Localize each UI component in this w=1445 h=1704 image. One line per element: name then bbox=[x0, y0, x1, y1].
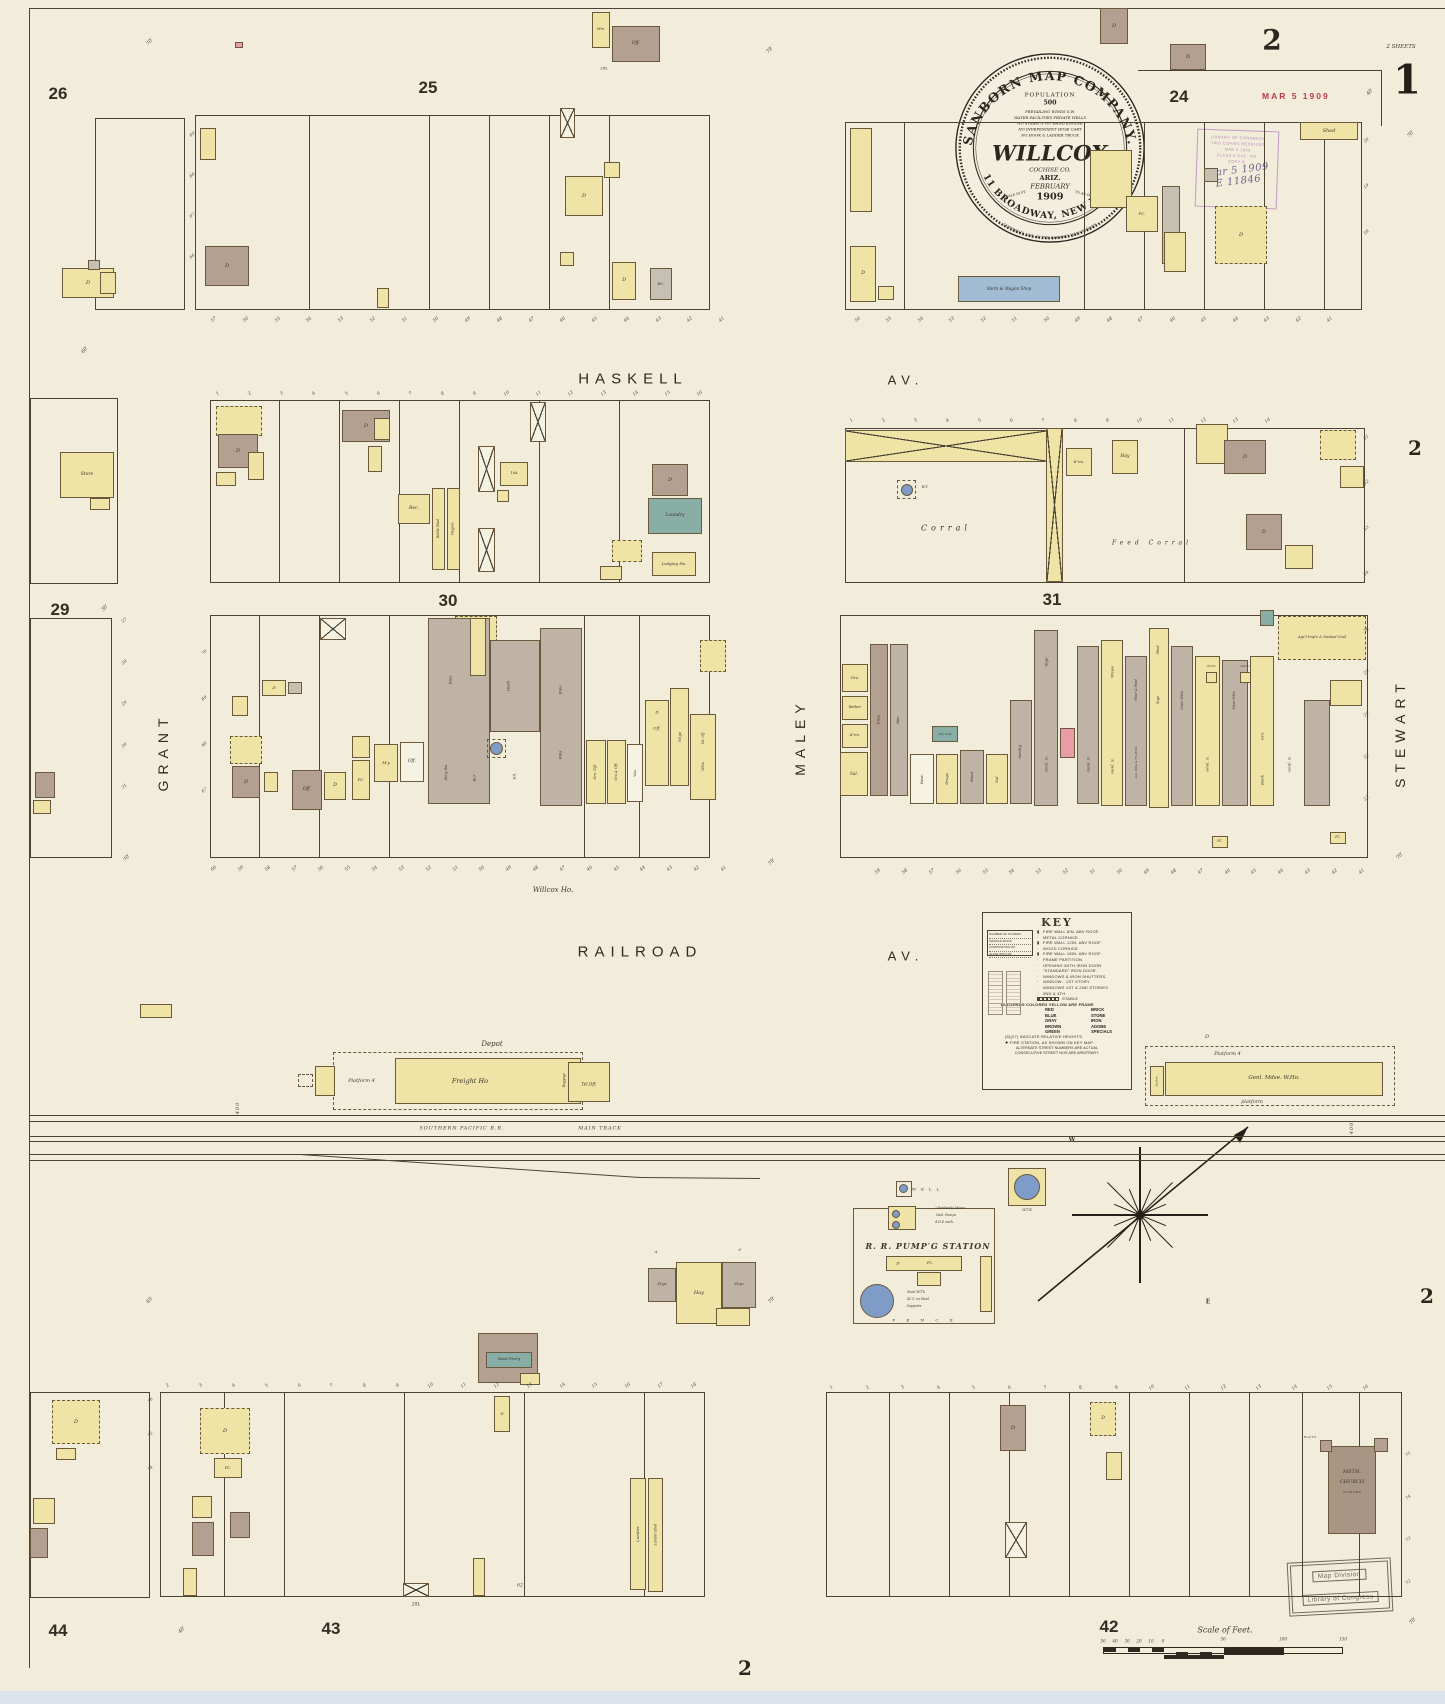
church-label: METH. bbox=[1343, 1469, 1361, 1475]
building bbox=[320, 618, 346, 640]
building-label: Drugs bbox=[945, 773, 949, 785]
lot-number: 9 bbox=[395, 1383, 400, 1389]
map-line bbox=[389, 615, 390, 857]
lot-number: 57 bbox=[928, 868, 936, 876]
map-line bbox=[1129, 1392, 1130, 1596]
map-label: Din′g Rm. bbox=[444, 764, 448, 781]
building-label: D bbox=[364, 424, 368, 429]
building-label: Lumber Shed bbox=[654, 1524, 657, 1546]
lot-number: 7 bbox=[1043, 1385, 1048, 1391]
map-line bbox=[904, 122, 905, 310]
map-label: Steel W.T′k bbox=[907, 1290, 925, 1294]
building bbox=[88, 260, 100, 270]
building: D bbox=[850, 246, 876, 302]
lot-number: 6 bbox=[1009, 418, 1014, 424]
lot-number: 5 bbox=[344, 391, 349, 397]
building-label: PC. bbox=[1217, 840, 1222, 843]
lot-number: 6 bbox=[297, 1383, 302, 1389]
building-label: St'ge bbox=[678, 732, 682, 742]
map-line bbox=[1184, 428, 1185, 583]
building bbox=[478, 528, 495, 572]
lot-number: 49 bbox=[464, 316, 472, 324]
building bbox=[264, 772, 278, 792]
building bbox=[1285, 545, 1313, 569]
lot-number: 56 bbox=[955, 868, 963, 876]
map-line bbox=[30, 1136, 1445, 1137]
building: Store bbox=[60, 452, 114, 498]
lot-number: 67 bbox=[200, 786, 207, 793]
lot-number: 40 bbox=[1112, 1639, 1117, 1644]
lot-number: 51 bbox=[401, 316, 409, 324]
map-label: Genl. S. bbox=[1086, 756, 1091, 772]
building bbox=[35, 772, 55, 798]
lot-number: 56 bbox=[854, 316, 862, 324]
freight-house-label: Freight Ho bbox=[452, 1077, 488, 1085]
building: D bbox=[1090, 1402, 1116, 1436]
building-label: Stern & Wagon Shop bbox=[987, 287, 1032, 291]
building: Sal. bbox=[840, 752, 868, 796]
lot-number: 5 bbox=[977, 418, 982, 424]
building: Off. bbox=[292, 770, 322, 810]
building bbox=[298, 1074, 313, 1087]
building bbox=[490, 742, 503, 755]
building: D bbox=[1224, 440, 1266, 474]
lot-number: 44 bbox=[640, 865, 648, 873]
building: PC. bbox=[1212, 836, 1228, 848]
map-label: WELL bbox=[912, 1187, 944, 1192]
lot-number: 57 bbox=[291, 865, 299, 873]
map-label: D bbox=[896, 1261, 899, 1266]
building: Bottle Shed bbox=[432, 488, 445, 570]
building: D bbox=[494, 1396, 510, 1432]
map-line bbox=[279, 400, 280, 582]
building bbox=[490, 640, 540, 732]
building: Rest. bbox=[910, 754, 934, 804]
lot-number: 48 bbox=[1106, 316, 1114, 324]
street-label-grant: GRANT bbox=[155, 713, 171, 792]
map-label: Rms bbox=[558, 751, 563, 760]
building: D bbox=[205, 246, 249, 286]
building bbox=[200, 128, 216, 160]
building-label: Sal. bbox=[850, 772, 858, 776]
building: St'ge bbox=[722, 1262, 756, 1308]
lot-number: 46 bbox=[559, 316, 567, 324]
building bbox=[315, 1066, 335, 1096]
scale-bar-segment bbox=[1164, 1655, 1224, 1659]
map-line bbox=[30, 1154, 1445, 1155]
building-label: Drs. Off. bbox=[594, 764, 598, 779]
key-mini-row: SLATE WITH RF bbox=[989, 952, 1031, 959]
compass-west: W bbox=[1069, 1137, 1076, 1144]
building: K'rm. bbox=[842, 724, 868, 748]
map-label: Flour & Feed bbox=[1134, 679, 1138, 700]
adjacent-sheet-2-right-upper: 2 bbox=[1408, 436, 1422, 460]
building-label: Off. bbox=[303, 788, 311, 793]
building bbox=[216, 472, 236, 486]
street-label-railroad-av: AV. bbox=[888, 949, 925, 964]
lot-number: 4 bbox=[945, 418, 950, 424]
building bbox=[1060, 728, 1075, 758]
map-label: 4 H.P. each bbox=[935, 1220, 953, 1224]
building: Wagons bbox=[447, 488, 460, 570]
building-label: Agr'l Imp's & Sacked Coal bbox=[1298, 636, 1346, 640]
map-line bbox=[584, 615, 585, 857]
building-label: D bbox=[622, 279, 626, 284]
building-label: Res. bbox=[897, 716, 901, 724]
map-label: 70′ bbox=[122, 853, 131, 863]
building: Vac. bbox=[627, 744, 643, 802]
map-line bbox=[429, 115, 430, 310]
map-label: Genl. S. bbox=[1287, 756, 1292, 772]
lot-number: 45 bbox=[591, 316, 599, 324]
map-line bbox=[549, 115, 550, 310]
lot-number: 50 bbox=[1220, 1637, 1225, 1642]
building: Lumber Shed bbox=[648, 1478, 663, 1592]
lot-number: 46 bbox=[1169, 316, 1177, 324]
building bbox=[33, 1498, 55, 1524]
lot-number: 8 bbox=[1078, 1385, 1083, 1391]
lot-number: 16 bbox=[1362, 1384, 1370, 1392]
lot-number: 51 bbox=[1089, 868, 1097, 876]
building bbox=[690, 714, 716, 800]
building-label: Wagons bbox=[452, 523, 455, 536]
building bbox=[1206, 672, 1217, 683]
lot-number: 12 bbox=[1220, 1384, 1228, 1392]
map-label: Roof T′k bbox=[1304, 1435, 1316, 1439]
block-number-42: 42 bbox=[1100, 1617, 1119, 1637]
building bbox=[1005, 1522, 1027, 1558]
building bbox=[473, 1558, 485, 1596]
lot-number: 42 bbox=[686, 316, 694, 324]
building-label: K'rm. bbox=[1074, 460, 1085, 464]
building-label: Bottle Shed bbox=[437, 520, 440, 539]
building bbox=[612, 540, 642, 562]
map-label: Off. bbox=[653, 726, 660, 731]
building: St'ge bbox=[648, 1268, 676, 1302]
lot-number: 5 bbox=[264, 1383, 269, 1389]
map-label: Bank bbox=[1260, 775, 1265, 785]
lot-number: 7 bbox=[330, 1383, 335, 1389]
lot-number: 57 bbox=[210, 316, 218, 324]
key-title: KEY bbox=[987, 916, 1127, 929]
lot-number: 8 bbox=[440, 391, 445, 397]
building bbox=[700, 640, 726, 672]
lot-number: 47 bbox=[559, 865, 567, 873]
building bbox=[1304, 700, 1330, 806]
building: D bbox=[1170, 44, 1206, 70]
building bbox=[1046, 428, 1063, 582]
building: D bbox=[1246, 514, 1282, 550]
seal-fact: WATER FACILITIES PRIVATE WELLS bbox=[1014, 115, 1086, 120]
building: Res. bbox=[890, 644, 908, 796]
seal-population-label: POPULATION bbox=[1025, 93, 1076, 99]
building bbox=[374, 418, 390, 440]
map-label: Supports bbox=[907, 1304, 922, 1308]
map-line bbox=[1204, 122, 1205, 310]
lot-number: 20 bbox=[1136, 1639, 1141, 1644]
lot-number: 53 bbox=[1036, 868, 1044, 876]
lot-number: 58 bbox=[264, 865, 272, 873]
building: D bbox=[200, 1408, 250, 1454]
lot-number: 13 bbox=[1255, 1384, 1263, 1392]
city-block-outline bbox=[30, 618, 112, 858]
building: Rec. bbox=[398, 494, 430, 524]
lot-number: 44 bbox=[623, 316, 631, 324]
building: D bbox=[652, 464, 688, 496]
lot-number: 10 bbox=[1149, 1384, 1157, 1392]
map-label: Genl. S. bbox=[1205, 756, 1210, 772]
building-label: Vac. bbox=[633, 769, 637, 777]
lot-number: 8 bbox=[1073, 418, 1078, 424]
lot-number: 45 bbox=[613, 865, 621, 873]
lot-number: 6 bbox=[1007, 1385, 1012, 1391]
map-line bbox=[1138, 70, 1382, 71]
lot-number: 52 bbox=[1062, 868, 1070, 876]
map-line bbox=[29, 8, 30, 1668]
building bbox=[1164, 232, 1186, 272]
map-label: Rms bbox=[558, 686, 563, 695]
lot-number: 1 bbox=[849, 418, 854, 424]
map-label: Tel. Off. bbox=[701, 732, 705, 745]
building bbox=[860, 1284, 894, 1318]
building-label: D bbox=[1011, 1426, 1015, 1431]
lot-number: 4 bbox=[936, 1385, 941, 1391]
building bbox=[540, 628, 582, 806]
map-label: MAIN TRACK bbox=[578, 1127, 622, 1132]
lot-number: 55 bbox=[886, 316, 894, 324]
lot-number: 43 bbox=[667, 865, 675, 873]
lot-number: 27 bbox=[120, 616, 127, 623]
building-label: Lodging Ho. bbox=[662, 562, 687, 566]
map-line bbox=[1084, 122, 1085, 310]
building bbox=[917, 1272, 941, 1286]
lot-number: 49 bbox=[1143, 868, 1151, 876]
adjacent-sheet-2-top: 2 bbox=[1262, 24, 1281, 57]
map-line bbox=[640, 1177, 760, 1179]
building-label: Wm. bbox=[597, 28, 605, 32]
lot-number: 58 bbox=[901, 868, 909, 876]
building-label: Scales bbox=[1156, 1076, 1159, 1086]
key-mini-table: NUMBER OF STORIESSHINGLE ROOFCOMPOSITION… bbox=[987, 930, 1033, 956]
map-label: Gasl. Pumps bbox=[936, 1213, 956, 1217]
building bbox=[850, 128, 872, 212]
map-label: Oil Ho bbox=[1206, 664, 1215, 668]
scale-bar bbox=[1103, 1647, 1343, 1654]
block-number-26: 26 bbox=[49, 84, 68, 104]
building: Dray bbox=[870, 644, 888, 796]
map-line bbox=[339, 400, 340, 582]
building-label: St'ge bbox=[657, 1283, 666, 1287]
lot-number: 18 bbox=[1362, 228, 1369, 235]
building: Wm. bbox=[592, 12, 610, 48]
lot-number: 73 bbox=[1404, 1536, 1411, 1543]
map-label: Gro. Hdw & T'n W.Ho. bbox=[1134, 746, 1138, 779]
building bbox=[560, 108, 575, 138]
map-label: Kit. bbox=[512, 773, 517, 780]
building-label: St'ge bbox=[734, 1283, 743, 1287]
lot-number: 72 bbox=[1404, 1578, 1411, 1585]
map-label: Genl. S. bbox=[1110, 758, 1115, 774]
building-label: Sal. bbox=[995, 775, 999, 783]
building bbox=[1320, 430, 1356, 460]
lot-number: 45 bbox=[1200, 316, 1208, 324]
lot-number: 3 bbox=[900, 1385, 905, 1391]
lot-number: 0 bbox=[1162, 1639, 1165, 1644]
lot-number: 10 bbox=[427, 1382, 435, 1390]
lot-number: 150 bbox=[1339, 1637, 1347, 1642]
building bbox=[230, 736, 262, 764]
map-label: 62 bbox=[517, 1584, 523, 1589]
lot-number: 17 bbox=[657, 1382, 665, 1390]
block-number-30: 30 bbox=[439, 591, 458, 611]
map-line bbox=[609, 115, 610, 310]
map-label: 41.5′ on Steel bbox=[907, 1297, 929, 1301]
lot-number: 2 bbox=[881, 418, 886, 424]
building bbox=[183, 1568, 197, 1596]
lot-number: 10 bbox=[1148, 1639, 1153, 1644]
lot-number: 29 bbox=[120, 699, 127, 706]
lot-number: 60 bbox=[210, 865, 218, 873]
map-label: Bar bbox=[472, 775, 477, 782]
building bbox=[892, 1210, 900, 1218]
street-label-maley: MALEY bbox=[792, 698, 808, 775]
lot-number: 46 bbox=[586, 865, 594, 873]
lot-number: 100 bbox=[1279, 1637, 1287, 1642]
lot-number: 52 bbox=[425, 865, 433, 873]
date-stamp: MAR 5 1909 bbox=[1262, 91, 1330, 101]
lot-number: 4 bbox=[312, 391, 317, 397]
building-label: Lumber bbox=[636, 1526, 640, 1542]
lot-number: 12 bbox=[493, 1382, 501, 1390]
building bbox=[892, 1221, 900, 1229]
map-label: 40′ bbox=[1365, 87, 1374, 97]
building: PC. bbox=[1126, 196, 1158, 232]
lot-number: 6 bbox=[376, 391, 381, 397]
building bbox=[1204, 168, 1218, 182]
building: Drugs bbox=[936, 754, 958, 804]
map-line bbox=[399, 400, 400, 582]
map-label: 65′ bbox=[145, 1295, 154, 1305]
map-line bbox=[1302, 1392, 1303, 1596]
map-label: 70′ bbox=[1395, 851, 1404, 861]
map-label: 60′ bbox=[80, 345, 89, 355]
building-label: D bbox=[1112, 24, 1116, 29]
scale-label: Scale of Feet. bbox=[1197, 1626, 1252, 1635]
building bbox=[216, 406, 262, 436]
map-label: 30′ bbox=[100, 603, 109, 613]
building: PC. bbox=[352, 760, 370, 800]
lot-number: 13 bbox=[600, 390, 608, 398]
lot-number: 50 bbox=[1116, 868, 1124, 876]
key-fine-print bbox=[1006, 971, 1021, 1015]
lot-number: 48 bbox=[1170, 868, 1178, 876]
building bbox=[497, 490, 509, 502]
lot-number: 15 bbox=[592, 1382, 600, 1390]
lot-number: 18 bbox=[690, 1382, 698, 1390]
lot-number: 53 bbox=[337, 316, 345, 324]
lot-number: 8 bbox=[363, 1383, 368, 1389]
lot-number: 43 bbox=[1263, 316, 1271, 324]
building-label: Dry G'ds bbox=[938, 733, 951, 736]
building bbox=[288, 682, 302, 694]
lot-number: 56 bbox=[242, 316, 250, 324]
map-line bbox=[30, 1141, 1445, 1142]
key-fine-print bbox=[988, 971, 1003, 1015]
lot-number: 54 bbox=[917, 316, 925, 324]
lot-number: 59 bbox=[237, 865, 245, 873]
building: 10A bbox=[500, 462, 528, 486]
building-label: D bbox=[1239, 233, 1243, 238]
map-line bbox=[30, 1115, 1445, 1116]
building-label: D bbox=[582, 194, 586, 199]
lot-number: 3 bbox=[198, 1383, 203, 1389]
lot-number: 47 bbox=[528, 316, 536, 324]
building bbox=[33, 800, 51, 814]
map-line bbox=[889, 1392, 890, 1596]
building-label: D bbox=[1262, 530, 1266, 535]
building bbox=[878, 286, 894, 300]
building: Sal. bbox=[986, 754, 1008, 804]
building: Gro.& Off. bbox=[607, 740, 626, 804]
compass-east: E bbox=[1206, 1299, 1211, 1306]
lot-number: 49 bbox=[505, 865, 513, 873]
building-label: D bbox=[1186, 55, 1190, 60]
map-label: Stge bbox=[1156, 696, 1160, 704]
building bbox=[235, 42, 243, 48]
building-label: Dray bbox=[877, 716, 881, 725]
compass-rose bbox=[1030, 1105, 1260, 1335]
map-line bbox=[319, 615, 320, 857]
building-label: Genl. Mdse. W.Ho. bbox=[1248, 1076, 1299, 1082]
building: Drs. Off. bbox=[586, 740, 606, 804]
building-label: Gro.& Off. bbox=[615, 763, 618, 781]
lot-number: 56 bbox=[318, 865, 326, 873]
lot-number: 47 bbox=[1137, 316, 1145, 324]
lot-number: 53 bbox=[949, 316, 957, 324]
building: PC. bbox=[214, 1458, 242, 1478]
building-label: D bbox=[236, 449, 240, 454]
map-label: Grain W.Ho. bbox=[1180, 690, 1184, 709]
building: D bbox=[1100, 8, 1128, 44]
building-label: Gamb'g bbox=[1019, 745, 1023, 759]
building bbox=[980, 1256, 992, 1312]
building: Dry G'ds bbox=[932, 726, 958, 742]
building: Shed bbox=[1300, 122, 1358, 140]
lot-number: 13 bbox=[1232, 417, 1240, 425]
lot-number: 54 bbox=[1009, 868, 1017, 876]
lot-number: 41 bbox=[718, 316, 726, 324]
building-label: Rest. bbox=[920, 774, 924, 784]
map-line bbox=[949, 1392, 950, 1596]
map-line bbox=[404, 1392, 405, 1596]
building bbox=[560, 252, 574, 266]
lot-number: 19 bbox=[1362, 182, 1369, 189]
building-label: Laundry bbox=[665, 514, 684, 519]
building: D bbox=[565, 176, 603, 216]
street-label-haskell-av: AV. bbox=[888, 373, 925, 388]
map-label: Rms bbox=[448, 676, 453, 685]
building: PC. bbox=[1330, 832, 1346, 844]
lot-number: 10 bbox=[503, 390, 511, 398]
building: Hand Print'g bbox=[486, 1352, 532, 1368]
lot-number: 12 bbox=[568, 390, 576, 398]
lot-number: 70 bbox=[200, 648, 207, 655]
building bbox=[368, 446, 382, 472]
map-label: Oil Ho bbox=[1240, 664, 1249, 668]
building: Lodging Ho. bbox=[652, 552, 696, 576]
lot-number: 14 bbox=[1264, 417, 1272, 425]
lot-number: 1 bbox=[215, 391, 220, 397]
